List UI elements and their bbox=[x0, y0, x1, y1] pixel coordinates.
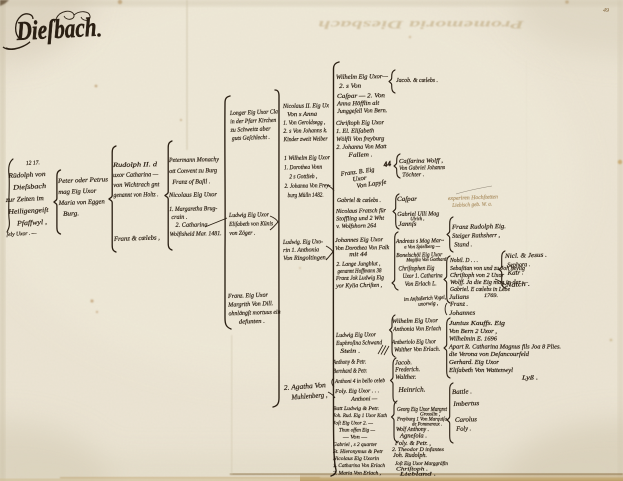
svg-text:2. Lange Jungblut ,: 2. Lange Jungblut , bbox=[336, 261, 381, 268]
svg-text:genannt Hoffmann 38: genannt Hoffmann 38 bbox=[337, 267, 381, 275]
svg-text:rin 1. Anthonia: rin 1. Anthonia bbox=[283, 246, 319, 254]
svg-text:1. Dorothea Vonn: 1. Dorothea Vonn bbox=[284, 164, 322, 172]
svg-text:v. Wolfshorn 264: v. Wolfshorn 264 bbox=[336, 222, 376, 230]
svg-text:uxorwig ,: uxorwig , bbox=[418, 301, 439, 308]
svg-text:Franz .: Franz . bbox=[449, 301, 468, 308]
svg-text:Batt Ludwig & Petr.: Batt Ludwig & Petr. bbox=[333, 406, 379, 412]
svg-text:Eliſabeth Von Wattenwyl: Eliſabeth Von Wattenwyl bbox=[448, 367, 514, 374]
svg-text:Wolfisheid Mar. 1481.: Wolfisheid Mar. 1481. bbox=[170, 230, 222, 238]
svg-text:Von Erlach L.: Von Erlach L. bbox=[405, 280, 437, 288]
svg-text:Rudolph II. d: Rudolph II. d bbox=[112, 161, 158, 169]
svg-text:Jannſs: Jannſs bbox=[398, 221, 417, 228]
svg-text:crain .: crain . bbox=[171, 214, 188, 221]
svg-text:zu Schweitz aber: zu Schweitz aber bbox=[229, 125, 271, 133]
svg-text:defunten .: defunten . bbox=[239, 318, 265, 326]
svg-text:Töchter .: Töchter . bbox=[402, 172, 424, 178]
svg-text:Nicolaus II. Eig Ux: Nicolaus II. Eig Ux bbox=[282, 102, 329, 110]
svg-text:Wilhelm Eig Uxor: Wilhelm Eig Uxor bbox=[392, 317, 439, 325]
svg-text:Burg.: Burg. bbox=[63, 210, 80, 218]
svg-text:mag Eig Uxor: mag Eig Uxor bbox=[58, 188, 97, 196]
svg-text:Anthoni —: Anthoni — bbox=[350, 396, 378, 402]
svg-text:Ludwig. Eig Uxo-: Ludwig. Eig Uxo- bbox=[282, 238, 323, 246]
svg-text:2. Johanna Von Frey-: 2. Johanna Von Frey- bbox=[284, 182, 330, 190]
svg-text:Caſſarina Wolff ,: Caſſarina Wolff , bbox=[399, 157, 444, 165]
svg-text:2. Maria Von Erlach ,: 2. Maria Von Erlach , bbox=[333, 470, 382, 476]
svg-text:Stein .: Stein . bbox=[340, 348, 360, 355]
svg-text:Walther Von Erlach.: Walther Von Erlach. bbox=[394, 346, 440, 354]
svg-text:Carolus: Carolus bbox=[455, 416, 478, 424]
svg-text:Liebland .: Liebland . bbox=[398, 472, 436, 478]
svg-text:Jacob. & cælebs .: Jacob. & cælebs . bbox=[396, 77, 438, 84]
svg-text:Joh. Rudolph.: Joh. Rudolph. bbox=[393, 453, 427, 459]
svg-text:Frederich.: Frederich. bbox=[394, 366, 420, 373]
svg-text:genannt von Holtz .: genannt von Holtz . bbox=[113, 191, 158, 199]
svg-text:Katr .: Katr . bbox=[506, 269, 524, 277]
svg-text:Wolf Anthony .: Wolf Anthony . bbox=[396, 426, 429, 433]
svg-text:Anthoni 4 in bello celeb: Anthoni 4 in bello celeb bbox=[334, 377, 385, 385]
svg-text:Joh. Rud. Eig 1 Uxor Kath: Joh. Rud. Eig 1 Uxor Kath bbox=[333, 413, 387, 419]
svg-text:Wilhelm Eig Uxor—: Wilhelm Eig Uxor— bbox=[336, 73, 388, 81]
svg-text:Chriſtoph Eig Uxor: Chriſtoph Eig Uxor bbox=[336, 119, 385, 127]
svg-text:Thun offen Eig —: Thun offen Eig — bbox=[339, 427, 376, 434]
svg-text:2 s Gottlieb ,: 2 s Gottlieb , bbox=[289, 173, 318, 180]
svg-text:Chriſtoph von 2 Uxor: Chriſtoph von 2 Uxor bbox=[450, 272, 505, 279]
svg-text:Euphroſina Schwand: Euphroſina Schwand bbox=[335, 339, 383, 347]
svg-text:die Verona von Deſancourfeld: die Verona von Deſancourfeld bbox=[449, 351, 529, 358]
svg-text:Foly .: Foly . bbox=[455, 425, 472, 433]
svg-text:Wilhelmin E. 1696: Wilhelmin E. 1696 bbox=[449, 337, 497, 343]
svg-text:Franz of Baſil .: Franz of Baſil . bbox=[171, 178, 210, 186]
svg-text:Johannes: Johannes bbox=[449, 310, 476, 317]
svg-text:Promemoria Diesbach: Promemoria Diesbach bbox=[317, 18, 524, 32]
svg-text:49: 49 bbox=[603, 7, 609, 14]
svg-text:Walther.: Walther. bbox=[395, 374, 417, 381]
svg-text:2. s Von: 2. s Von bbox=[339, 83, 361, 90]
svg-text:Anthony & Petr.: Anthony & Petr. bbox=[332, 358, 366, 366]
svg-text:Anthonia Von Erlach: Anthonia Von Erlach bbox=[392, 325, 441, 333]
svg-text:12 17.: 12 17. bbox=[26, 160, 40, 167]
svg-text:Dieſbach: Dieſbach bbox=[15, 12, 97, 46]
svg-text:Imbertus: Imbertus bbox=[452, 400, 480, 408]
svg-text:Ludwig Eig Uxor: Ludwig Eig Uxor bbox=[335, 331, 377, 339]
svg-text:St. Hieronymus & Petr: St. Hieronymus & Petr bbox=[333, 449, 384, 455]
svg-text:Gabriel & cælebs .: Gabriel & cælebs . bbox=[337, 197, 381, 204]
svg-text:Gabriel , s 2 quarter: Gabriel , s 2 quarter bbox=[333, 442, 378, 448]
svg-text:Junggeſell Von Bern.: Junggeſell Von Bern. bbox=[337, 107, 387, 115]
svg-text:Petermann Monachy: Petermann Monachy bbox=[168, 156, 219, 164]
svg-text:1. El. Eliſabeth: 1. El. Eliſabeth bbox=[336, 127, 374, 135]
svg-text:Agneſola .: Agneſola . bbox=[399, 433, 427, 440]
svg-text:Natch .: Natch . bbox=[504, 281, 530, 289]
svg-text:Gabriel. E cælebs in Lebe: Gabriel. E cælebs in Lebe bbox=[450, 287, 510, 293]
svg-text:uxor Catharina —: uxor Catharina — bbox=[113, 171, 158, 179]
svg-text:— Von —: — Von — bbox=[342, 435, 368, 441]
svg-text:Chriſtophen Eig: Chriſtophen Eig bbox=[398, 265, 435, 273]
svg-text:ott Convent zu Burg: ott Convent zu Burg bbox=[169, 167, 218, 175]
svg-text:Caſpar: Caſpar bbox=[397, 196, 418, 203]
svg-text:1. Margaretha Brug-: 1. Margaretha Brug- bbox=[169, 205, 217, 213]
svg-text:Uxor 1. Catharina: Uxor 1. Catharina bbox=[403, 272, 443, 280]
svg-text:Gerhard. Eig Uxor: Gerhard. Eig Uxor bbox=[449, 360, 500, 366]
svg-text:Eliſabeth von Künis: Eliſabeth von Künis bbox=[228, 220, 274, 228]
svg-text:Foly. Eig Uxor . . .: Foly. Eig Uxor . . . bbox=[334, 388, 379, 395]
svg-text:2. s Von Johanns k.: 2. s Von Johanns k. bbox=[283, 127, 327, 135]
svg-text:mit 44: mit 44 bbox=[349, 251, 367, 258]
svg-text:yor Kylia Chriſten ,: yor Kylia Chriſten , bbox=[335, 282, 383, 290]
svg-text:Apart R. Catharina Magnus fils: Apart R. Catharina Magnus fils Joa 8 Pli… bbox=[448, 343, 561, 350]
svg-text:guts Geſchlecht .: guts Geſchlecht . bbox=[232, 134, 270, 142]
svg-text:Battle .: Battle . bbox=[452, 388, 473, 396]
svg-text:Junius Kauffs. Eig: Junius Kauffs. Eig bbox=[449, 320, 505, 327]
svg-text:Von Bern 2 Uxor ,: Von Bern 2 Uxor , bbox=[449, 329, 498, 335]
svg-text:Von Gabriel Johanns: Von Gabriel Johanns bbox=[399, 165, 446, 172]
svg-text:von Zöger .: von Zöger . bbox=[229, 230, 255, 237]
svg-text:2. Johanna Von Matt: 2. Johanna Von Matt bbox=[336, 143, 386, 151]
svg-text:Lyß .: Lyß . bbox=[521, 375, 538, 382]
svg-text:Anna Höfflin alt: Anna Höfflin alt bbox=[336, 100, 379, 108]
svg-text:Kinder zweit Weiber: Kinder zweit Weiber bbox=[283, 135, 328, 143]
svg-text:Magiſta Von Gotthard: Magiſta Von Gotthard bbox=[405, 258, 446, 264]
svg-text:a Von Spielberg —: a Von Spielberg — bbox=[404, 245, 441, 251]
svg-text:Steiger Rathsherr ,: Steiger Rathsherr , bbox=[452, 232, 501, 240]
svg-text:1. Von Geroldsegg ,: 1. Von Geroldsegg , bbox=[283, 119, 326, 127]
svg-text:Sephora .: Sephora . bbox=[507, 261, 531, 269]
svg-text:Ludwig Eig Uxor: Ludwig Eig Uxor bbox=[228, 211, 270, 219]
svg-text:von Wichtrach gnt: von Wichtrach gnt bbox=[113, 181, 159, 189]
svg-text:2. Catharina: 2. Catharina bbox=[175, 221, 207, 229]
svg-text:Stoffling und 2 Wht: Stoffling und 2 Wht bbox=[336, 215, 384, 223]
svg-text:1769.: 1769. bbox=[484, 293, 498, 299]
svg-text:Nicolaus Eig Uxor: Nicolaus Eig Uxor bbox=[168, 191, 218, 199]
svg-text:Nicolaus Eig Uxorin: Nicolaus Eig Uxorin bbox=[332, 456, 379, 462]
svg-text:Von s Anna: Von s Anna bbox=[287, 111, 317, 119]
svg-text:Franz Jok Ludwig Eig: Franz Jok Ludwig Eig bbox=[335, 275, 384, 282]
svg-text:Johannes Eig Uxor: Johannes Eig Uxor bbox=[335, 237, 384, 244]
svg-text:Nobil. D . . .: Nobil. D . . . bbox=[449, 258, 478, 264]
svg-text:2. Theodor D infantes: 2. Theodor D infantes bbox=[392, 446, 444, 453]
svg-text:Von Ringoltingen.: Von Ringoltingen. bbox=[283, 254, 327, 262]
svg-text:Wölfli Von freyburg: Wölfli Von freyburg bbox=[336, 135, 384, 143]
svg-text:Nicolaus Fratsch für: Nicolaus Fratsch für bbox=[335, 207, 387, 215]
svg-text:Franz Rudolph Eig.: Franz Rudolph Eig. bbox=[451, 223, 507, 231]
svg-text:Stand .: Stand . bbox=[454, 241, 473, 248]
svg-text:Fallem .: Fallem . bbox=[347, 151, 372, 158]
svg-text:burg Mülln 1482.: burg Mülln 1482. bbox=[288, 192, 324, 200]
svg-text:1. Catharina Von Erlach: 1. Catharina Von Erlach bbox=[333, 463, 385, 469]
svg-text:1 Wilhelm Eig Uxor: 1 Wilhelm Eig Uxor bbox=[284, 154, 331, 162]
svg-text:Franz. Eig Uxor: Franz. Eig Uxor bbox=[227, 292, 269, 300]
svg-text:Antberiolo Eig Uxor: Antberiolo Eig Uxor bbox=[391, 338, 436, 346]
svg-text:Bernhard & Petr.: Bernhard & Petr. bbox=[333, 367, 367, 375]
svg-text:Heinrich.: Heinrich. bbox=[397, 385, 425, 393]
svg-text:Joſt Eig Uxor 2. —: Joſt Eig Uxor 2. — bbox=[333, 419, 374, 426]
